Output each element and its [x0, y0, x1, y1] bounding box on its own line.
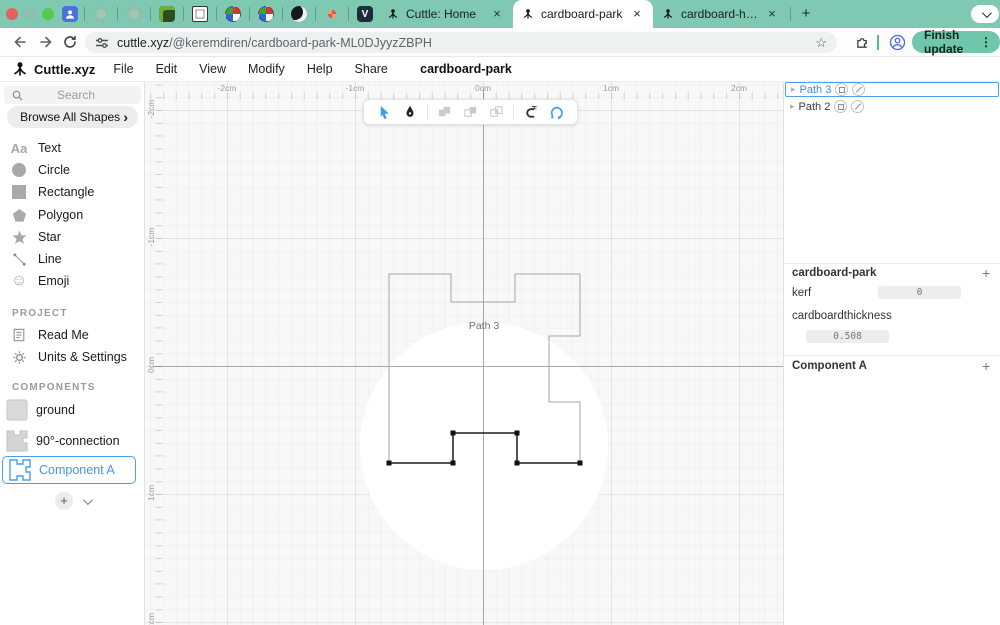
close-icon[interactable]: × [629, 6, 645, 22]
divider [513, 104, 514, 120]
add-component-button[interactable]: + [55, 492, 73, 510]
chevron-down-icon [981, 8, 991, 18]
divider [249, 7, 250, 21]
shape-label: Polygon [38, 208, 83, 222]
search-icon [12, 90, 23, 101]
rotate-tool-icon[interactable] [547, 103, 565, 121]
param-name-kerf: kerf [792, 287, 811, 299]
selected-path-segments[interactable] [389, 433, 580, 463]
subtract-tool-icon[interactable] [461, 103, 479, 121]
browser-toolbar: cuttle.xyz/@keremdiren/cardboard-park-ML… [0, 28, 1000, 57]
outline-row-path-2[interactable]: ▸ Path 2 [785, 99, 999, 114]
shape-label: Circle [38, 163, 70, 177]
shape-label: Rectangle [38, 185, 94, 199]
more-options-icon[interactable]: ⋮ [980, 35, 992, 49]
divider [282, 7, 283, 21]
project-section-title: cardboard-park [792, 267, 876, 279]
divider [84, 7, 85, 21]
book-icon[interactable] [192, 6, 208, 22]
sparkle-icon[interactable] [324, 6, 340, 22]
finish-update-button[interactable]: Finish update ⋮ [912, 31, 1000, 53]
shape-item-rectangle[interactable]: Rectangle [0, 181, 145, 203]
project-header: PROJECT [12, 308, 68, 319]
browser-tab-strip: V Cuttle: Home × cardboard-park × [0, 0, 1000, 28]
param-value-cardboardthickness[interactable]: 0.508 [806, 330, 889, 343]
project-item-label: Read Me [38, 328, 89, 342]
address-bar[interactable]: cuttle.xyz/@keremdiren/cardboard-park-ML… [85, 32, 837, 53]
components-header: COMPONENTS [12, 382, 96, 393]
search-input[interactable]: Search [4, 86, 141, 104]
select-tool-icon[interactable] [376, 103, 394, 121]
inspector-panel: ▸ Path 3 ▸ Path 2 cardboard-park + kerf … [783, 82, 1000, 625]
cuttle-favicon-icon [661, 7, 675, 21]
new-tab-button[interactable]: + [797, 5, 815, 23]
triangle-right-icon[interactable]: ▸ [791, 84, 796, 95]
profile-tile-icon[interactable] [62, 6, 78, 22]
component-section-title: Component A [792, 360, 867, 372]
component-label: 90°-connection [36, 434, 120, 448]
snap-grid-tool-icon[interactable] [522, 103, 540, 121]
tab-title: cardboard-park [541, 7, 623, 21]
close-icon[interactable]: × [764, 6, 780, 22]
divider [117, 7, 118, 21]
divider [877, 35, 879, 50]
zoom-window-button[interactable] [42, 8, 54, 20]
param-name-cardboardthickness: cardboardthickness [792, 310, 892, 322]
canvas[interactable]: -2cm -1cm 0cm 1cm 2cm -2cm -1cm 0cm 1cm … [145, 82, 783, 625]
chevron-right-icon: › [123, 109, 128, 125]
shapes-sidebar: Search Browse All Shapes › Aa Text Circl… [0, 82, 145, 625]
tab-title: Cuttle: Home [406, 7, 483, 21]
connection-thumbnail-icon [6, 430, 28, 452]
forward-icon[interactable] [38, 34, 55, 51]
tab-search-chevron-button[interactable] [971, 5, 999, 23]
site-settings-icon[interactable] [95, 36, 109, 50]
finish-update-label: Finish update [924, 28, 974, 56]
pinned-tabs: V [84, 0, 373, 28]
project-item-label: Units & Settings [38, 350, 127, 364]
back-icon[interactable] [12, 34, 29, 51]
window-controls [6, 8, 54, 20]
divider [183, 7, 184, 21]
cuttle-favicon-icon [386, 7, 400, 21]
leaf-icon[interactable] [93, 6, 109, 22]
component-label: Component A [39, 463, 115, 477]
pinwheel-icon[interactable] [258, 6, 274, 22]
tab-cuttle-home[interactable]: Cuttle: Home × [378, 0, 513, 28]
param-value-kerf[interactable]: 0 [878, 286, 961, 299]
intersect-tool-icon[interactable] [487, 103, 505, 121]
cuttle-logo-icon[interactable] [12, 61, 28, 77]
path-3-label: Path 3 [469, 320, 499, 332]
fill-style-icon[interactable] [834, 100, 847, 113]
divider [216, 7, 217, 21]
profile-avatar-icon[interactable] [889, 34, 906, 51]
bookmark-star-icon[interactable]: ☆ [815, 35, 827, 51]
component-item-90-connection[interactable]: 90°-connection [0, 427, 145, 455]
menu-help[interactable]: Help [307, 62, 333, 76]
shape-label: Star [38, 230, 61, 244]
component-item-ground[interactable]: ground [0, 396, 145, 424]
tab-title: cardboard-house [681, 7, 758, 21]
menu-modify[interactable]: Modify [248, 62, 285, 76]
polygon-icon [9, 208, 29, 223]
menu-view[interactable]: View [199, 62, 226, 76]
divider [427, 104, 428, 120]
circle-icon [9, 163, 29, 177]
app-menu-bar: Cuttle.xyz File Edit View Modify Help Sh… [0, 57, 1000, 82]
chevron-down-icon[interactable] [83, 495, 93, 505]
url-domain: cuttle.xyz [117, 36, 169, 50]
url-path: /@keremdiren/cardboard-park-ML0DJyyzZBPH [169, 36, 432, 50]
outline-item-name: Path 2 [799, 101, 831, 113]
canvas-toolbar [363, 99, 578, 125]
reload-icon[interactable] [62, 34, 79, 51]
outline-row-path-3[interactable]: ▸ Path 3 [785, 82, 999, 97]
stroke-style-icon[interactable] [851, 100, 864, 113]
document-title: cardboard-park [420, 62, 512, 76]
union-tool-icon[interactable] [436, 103, 454, 121]
gear-icon [9, 350, 29, 365]
shape-layer [145, 82, 783, 625]
shape-label: Text [38, 141, 61, 155]
divider [784, 263, 1000, 264]
search-placeholder: Search [57, 88, 95, 102]
shape-item-star[interactable]: Star [0, 226, 145, 248]
menu-file[interactable]: File [113, 62, 133, 76]
component-add-row: + [0, 492, 145, 510]
url-text: cuttle.xyz/@keremdiren/cardboard-park-ML… [117, 36, 807, 50]
brand-label[interactable]: Cuttle.xyz [34, 62, 95, 77]
smiley-icon: ☺ [9, 272, 29, 290]
divider [790, 7, 791, 21]
divider [348, 7, 349, 21]
pinwheel-icon[interactable] [225, 6, 241, 22]
browse-all-shapes-button[interactable]: Browse All Shapes › [7, 106, 138, 128]
frog-icon[interactable] [159, 6, 175, 22]
extensions-icon[interactable] [855, 35, 872, 52]
vertex-handles[interactable] [387, 431, 583, 466]
shape-label: Emoji [38, 274, 69, 288]
add-parameter-button[interactable]: + [982, 358, 990, 374]
browser-window: V Cuttle: Home × cardboard-park × [0, 0, 1000, 625]
component-item-component-a[interactable]: Component A [2, 456, 136, 484]
text-icon: Aa [9, 141, 29, 156]
moon-icon[interactable] [291, 6, 307, 22]
stroke-style-icon[interactable] [852, 83, 865, 96]
menu-share[interactable]: Share [355, 62, 388, 76]
divider [784, 355, 1000, 356]
path-3-outline[interactable] [389, 274, 580, 463]
component-label: ground [36, 403, 75, 417]
shape-item-text[interactable]: Aa Text [0, 137, 145, 159]
ground-thumbnail-icon [6, 399, 28, 421]
sidebar-item-read-me[interactable]: Read Me [0, 324, 145, 346]
fill-style-icon[interactable] [835, 83, 848, 96]
rectangle-icon [9, 185, 29, 199]
shape-item-emoji[interactable]: ☺ Emoji [0, 270, 145, 292]
shape-item-circle[interactable]: Circle [0, 159, 145, 181]
pen-tool-icon[interactable] [401, 103, 419, 121]
tab-cardboard-park[interactable]: cardboard-park × [513, 0, 653, 28]
leaf-icon[interactable] [126, 6, 142, 22]
sidebar-item-units-settings[interactable]: Units & Settings [0, 346, 145, 368]
shape-item-line[interactable]: Line [0, 248, 145, 270]
menu-edit[interactable]: Edit [156, 62, 178, 76]
triangle-right-icon[interactable]: ▸ [790, 101, 795, 112]
cuttle-favicon-icon [521, 7, 535, 21]
star-icon [9, 230, 29, 245]
minimize-window-button[interactable] [24, 8, 36, 20]
tab-group: Cuttle: Home × cardboard-park × cardboar… [378, 0, 788, 28]
divider [150, 7, 151, 21]
shape-label: Line [38, 252, 62, 266]
add-parameter-button[interactable]: + [982, 265, 990, 281]
close-window-button[interactable] [6, 8, 18, 20]
close-icon[interactable]: × [489, 6, 505, 22]
shape-item-polygon[interactable]: Polygon [0, 204, 145, 226]
component-a-thumbnail-icon [9, 459, 31, 481]
tab-cardboard-house[interactable]: cardboard-house × [653, 0, 788, 28]
browse-all-label: Browse All Shapes [17, 110, 123, 124]
line-icon [9, 252, 29, 267]
v-tile-icon[interactable]: V [357, 6, 373, 22]
divider [315, 7, 316, 21]
document-icon [9, 328, 29, 342]
outline-item-name: Path 3 [800, 84, 832, 96]
